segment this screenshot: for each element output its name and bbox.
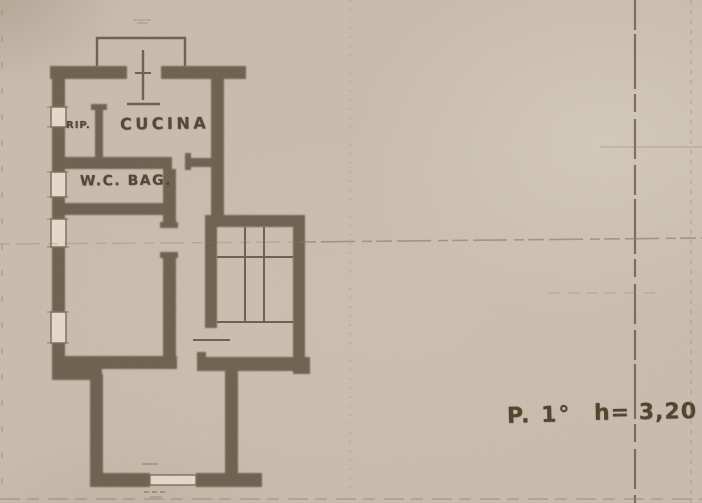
height-note: h= 3,20 (594, 399, 697, 426)
floorplan-drawing (0, 0, 702, 503)
room-label-rip: RIP. (66, 120, 91, 131)
floor-note: P. 1° (507, 402, 572, 429)
room-label-wc: W.C. BAG. (80, 173, 172, 190)
room-label-cucina: CUCINA (120, 113, 209, 133)
paper-grain-texture (0, 0, 702, 503)
floorplan-scan-page: RIP. CUCINA W.C. BAG. P. 1° h= 3,20 (0, 0, 702, 503)
